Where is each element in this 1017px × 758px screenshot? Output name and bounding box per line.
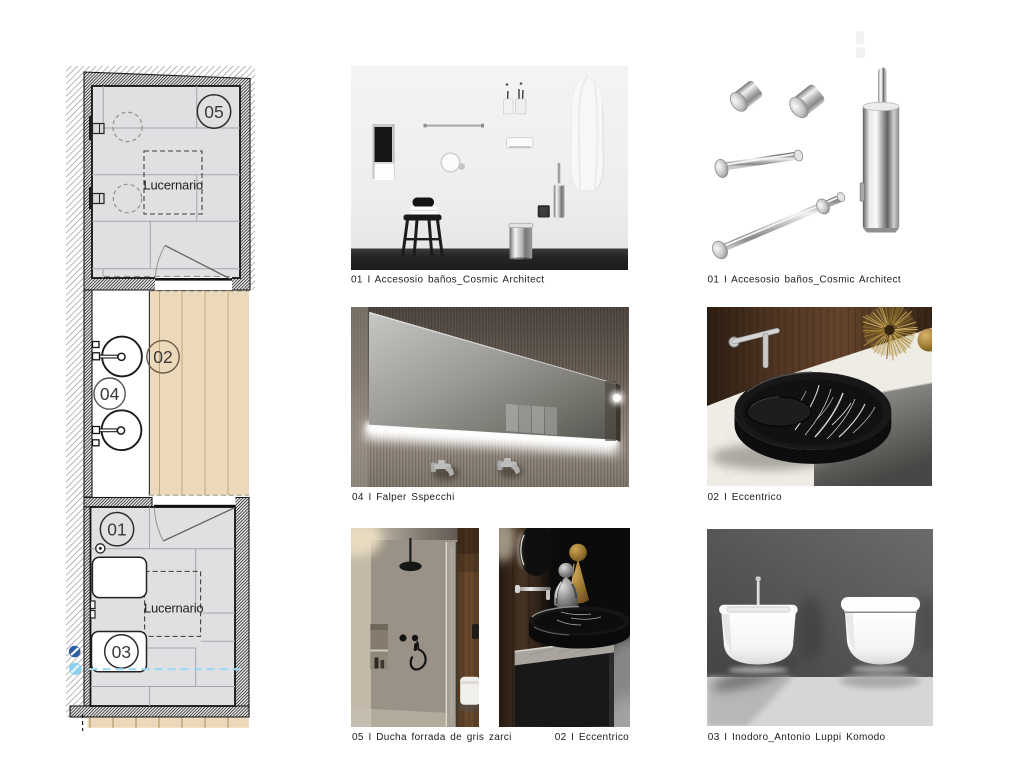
svg-text:01: 01 (107, 520, 126, 540)
svg-text:Lucernario: Lucernario (144, 178, 203, 193)
svg-text:03: 03 (112, 642, 131, 662)
svg-text:01 I Accesosio baños_Cosmic: 01 I Accesosio baños_Cosmic Architect (708, 275, 901, 286)
svg-text:01 I Accesosio baños_Cosmic: 01 I Accesosio baños_Cosmic Architect (351, 275, 544, 286)
svg-text:03 I Inodoro_Antonio Luppi: 03 I Inodoro_Antonio Luppi Komodo (708, 732, 886, 743)
svg-text:02: 02 (153, 347, 172, 367)
svg-text:02 I Eccentrico: 02 I Eccentrico (555, 732, 629, 743)
svg-text:02 I Eccentrico: 02 I Eccentrico (708, 492, 782, 503)
svg-text:04 I Falper Sspecchi: 04 I Falper Sspecchi (352, 492, 455, 503)
svg-text:04: 04 (100, 384, 120, 404)
svg-text:05: 05 (204, 102, 223, 122)
svg-text:05 I Ducha forrada de gri: 05 I Ducha forrada de gris zarci (352, 732, 512, 743)
svg-text:Lucernario: Lucernario (144, 601, 203, 616)
